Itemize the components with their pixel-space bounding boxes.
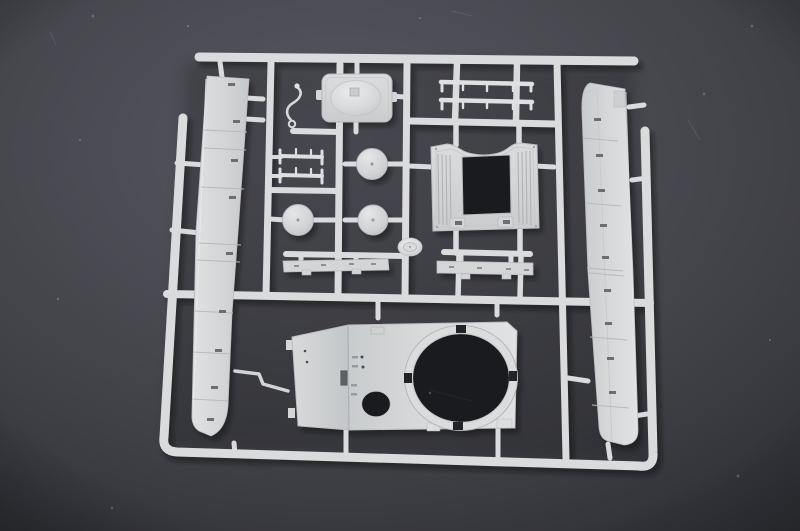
dome-bulge: [331, 81, 381, 116]
part-square-frame-plate: [431, 143, 539, 231]
cross-runner-b: [269, 190, 339, 191]
cross-runner-c: [286, 254, 405, 256]
vertical-runner-5: [516, 63, 517, 121]
fold-slot-detail: [340, 370, 348, 386]
sprue-photo: [0, 0, 800, 531]
cross-runner-a: [293, 131, 339, 132]
round-hatch-opening: [362, 391, 391, 417]
injection-point-boss: [398, 238, 422, 256]
part-domed-cover: [316, 74, 397, 122]
upper-right-cross-runner: [410, 121, 556, 124]
background: [0, 0, 800, 531]
photo-stage: [0, 0, 800, 531]
vertical-runner-4: [455, 63, 457, 121]
vertical-runner-1: [266, 63, 271, 296]
square-opening: [462, 155, 511, 215]
panel-top-notch: [614, 91, 625, 107]
dome-vent-detail: [350, 88, 359, 96]
top-frame-runner: [199, 57, 634, 61]
turret-ring-opening: [413, 334, 510, 423]
part-roof-plate: [286, 322, 518, 431]
